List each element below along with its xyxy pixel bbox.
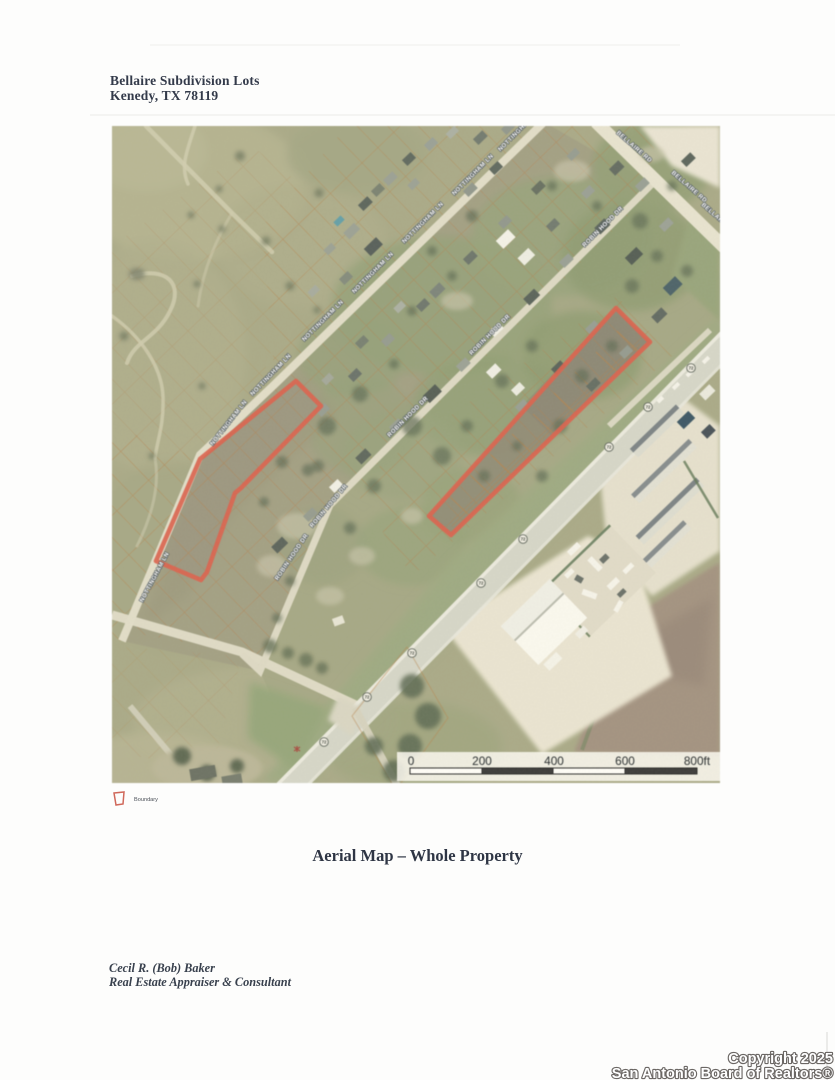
svg-text:Boundary: Boundary [134,797,158,803]
svg-text:Copyright 2025: Copyright 2025 [728,1051,833,1067]
svg-text:San Antonio Board of Realtors®: San Antonio Board of Realtors® [612,1066,834,1080]
